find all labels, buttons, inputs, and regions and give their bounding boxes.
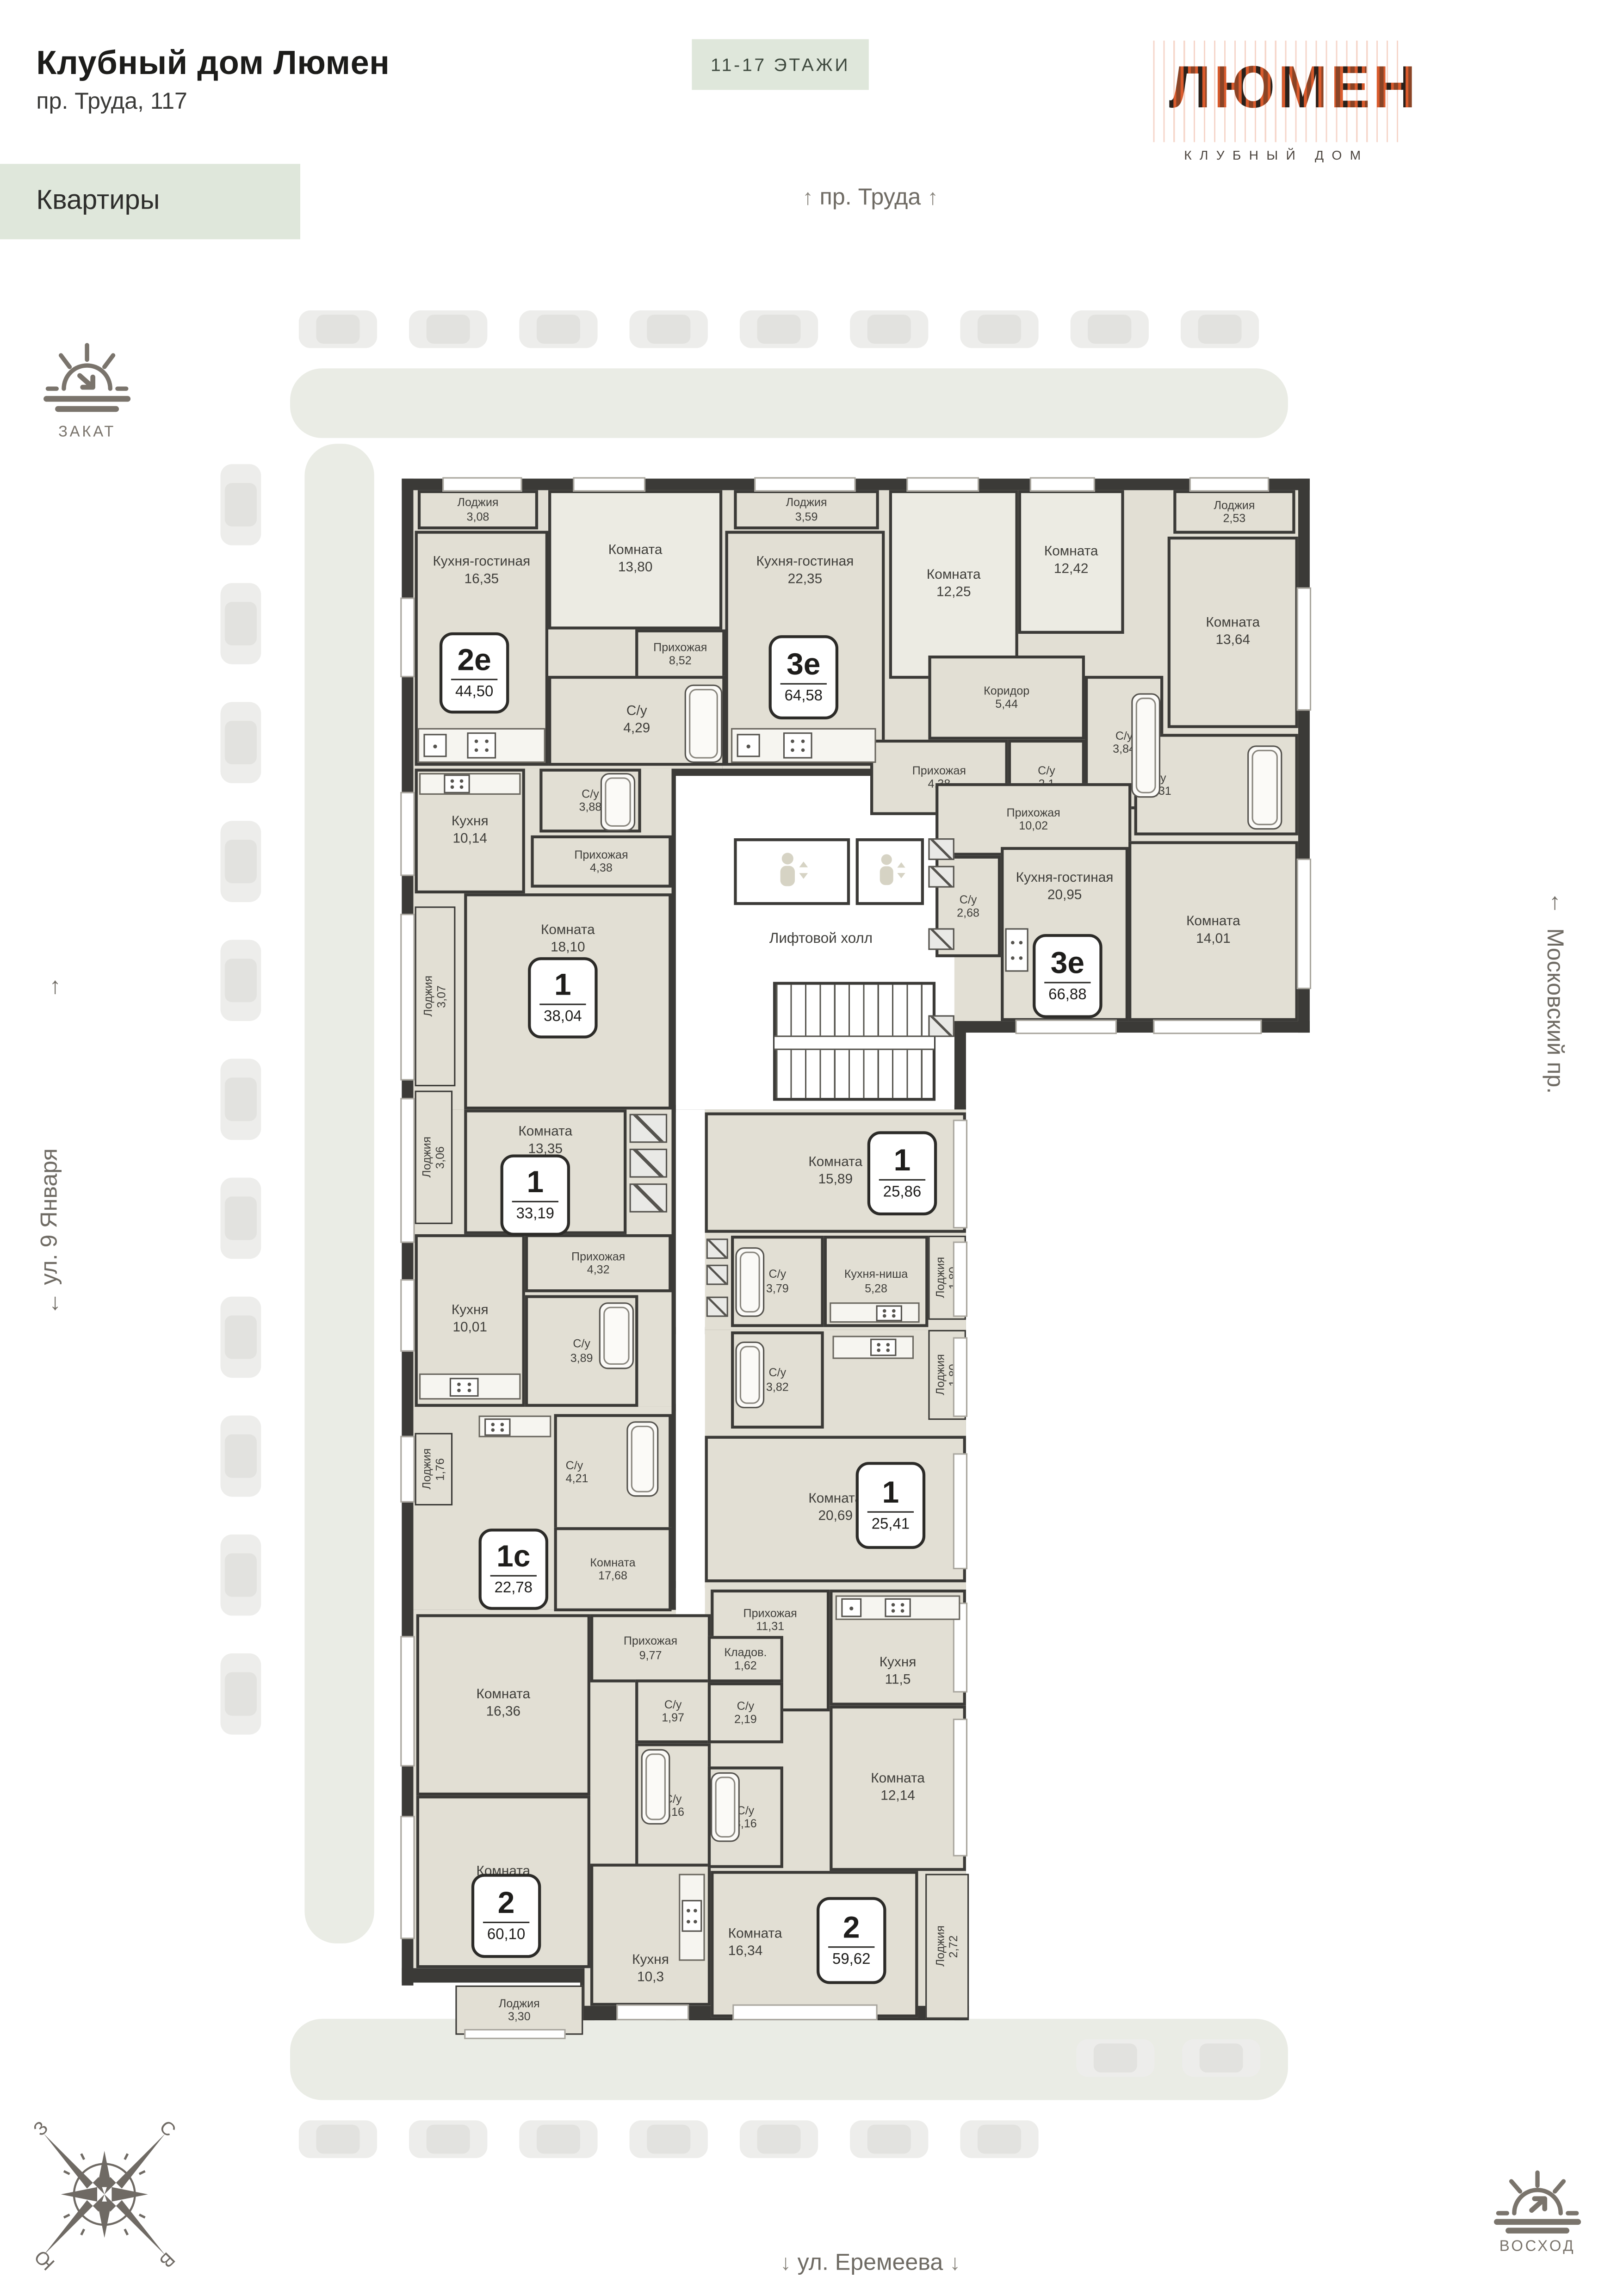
room-1s-loggia: Лоджия1,76	[415, 1433, 453, 1505]
arrow-up-icon: ↑	[1537, 891, 1572, 916]
window	[573, 477, 645, 491]
car-icon	[221, 464, 261, 545]
car-icon	[221, 1059, 261, 1140]
window	[953, 1242, 967, 1317]
room-5962-room2: Комната16,34	[711, 1871, 918, 2018]
window	[616, 2005, 689, 2020]
room-3804-loggia: Лоджия3,07	[415, 906, 456, 1086]
vent-shaft	[706, 1297, 728, 1317]
kitchen-counter	[830, 1302, 919, 1323]
window	[400, 1636, 415, 1766]
car-icon	[630, 2120, 708, 2158]
section-tab-apartments[interactable]: Квартиры	[0, 164, 300, 239]
car-icon	[221, 821, 261, 902]
stove-icon	[681, 1900, 702, 1932]
room-3e64-room2: Комната12,42	[1018, 490, 1124, 634]
section-label: Квартиры	[0, 186, 160, 217]
elevator-shaft	[734, 838, 850, 905]
stove-icon	[885, 1598, 911, 1617]
parking-lane-left	[304, 444, 374, 1943]
bathtub-icon	[601, 773, 635, 831]
car-icon	[221, 583, 261, 664]
room-3e64-room1: Комната12,25	[889, 490, 1018, 679]
window	[464, 2029, 565, 2039]
room-5962-room1: Комната12,14	[830, 1706, 966, 1871]
stove-icon	[467, 732, 496, 758]
sunset-label: ЗАКАТ	[29, 423, 145, 441]
window	[400, 914, 415, 1081]
bathtub-icon	[1247, 745, 1282, 829]
car-icon	[221, 702, 261, 783]
window	[400, 1098, 415, 1243]
car-icon	[221, 940, 261, 1021]
floor-plan-page: Клубный дом Люмен пр. Труда, 117 Квартир…	[0, 0, 1623, 2296]
bathtub-icon	[641, 1749, 670, 1825]
bathtub-icon	[711, 1772, 740, 1842]
car-icon	[299, 310, 377, 348]
car-icon	[409, 2120, 487, 2158]
car-icon	[960, 2120, 1038, 2158]
window	[1153, 1020, 1262, 1034]
car-icon	[1076, 2039, 1154, 2077]
arrow-down-icon: ↓	[780, 2251, 791, 2276]
room-3e64-loggia: Лоджия3,59	[734, 490, 879, 530]
stove-icon	[444, 774, 470, 793]
stove-icon	[783, 732, 812, 758]
sink-icon	[737, 734, 760, 757]
car-icon	[740, 310, 818, 348]
floors-badge: 11-17 ЭТАЖИ	[692, 39, 868, 90]
compass-rose: З С Ю В	[32, 2115, 177, 2274]
apartment-badge-2e-44-50[interactable]: 2е44,50	[440, 632, 509, 714]
room-6010-room1: Комната16,36	[416, 1614, 590, 1795]
window	[1189, 477, 1269, 491]
street-top: ↑ пр. Труда ↑	[624, 186, 1117, 211]
car-icon	[740, 2120, 818, 2158]
apartment-badge-1-38-04[interactable]: 138,04	[528, 957, 597, 1039]
window	[400, 1816, 415, 1939]
sink-icon	[423, 734, 446, 757]
window	[400, 1279, 415, 1352]
stove-icon	[1005, 928, 1028, 972]
stove-icon	[450, 1378, 479, 1397]
vent-shaft	[928, 928, 954, 950]
car-icon	[960, 310, 1038, 348]
bathtub-icon	[685, 685, 723, 763]
car-icon	[221, 1535, 261, 1616]
street-right: Московский пр.	[1540, 928, 1566, 1269]
car-icon	[850, 2120, 928, 2158]
bathtub-icon	[626, 1421, 658, 1497]
window	[732, 2005, 878, 2020]
room-1s-room: Комната17,68	[554, 1527, 672, 1611]
window	[400, 1436, 415, 1503]
elevator-shaft	[856, 838, 924, 905]
arrow-down-icon: ↓	[38, 1291, 73, 1317]
room-5962-bath1: С/у2,19	[708, 1683, 783, 1744]
sunrise-label: ВОСХОД	[1480, 2238, 1596, 2255]
street-bottom-label: ул. Еремеева	[798, 2251, 943, 2276]
room-3319-loggia: Лоджия3,06	[415, 1091, 453, 1224]
car-icon	[221, 1178, 261, 1259]
street-top-label: пр. Труда	[820, 186, 921, 210]
page-address: пр. Труда, 117	[36, 90, 187, 116]
street-bottom: ↓ ул. Еремеева ↓	[609, 2251, 1132, 2277]
staircase	[773, 982, 935, 1101]
window	[1297, 859, 1311, 989]
floors-badge-label: 11-17 ЭТАЖИ	[711, 55, 850, 75]
vent-shaft	[630, 1183, 668, 1213]
apartment-badge-1-25-86[interactable]: 125,86	[867, 1131, 937, 1215]
compass-star-icon	[32, 2115, 177, 2274]
vent-shaft	[630, 1149, 668, 1178]
window	[1297, 588, 1311, 711]
window	[442, 477, 522, 491]
room-2e-room: Комната13,80	[548, 490, 722, 630]
vent-shaft	[928, 866, 954, 888]
arrow-up-icon: ↑	[927, 186, 938, 210]
car-icon	[519, 2120, 597, 2158]
room-2e-loggia: Лоджия3,08	[418, 490, 538, 530]
vent-shaft	[706, 1238, 728, 1259]
bathtub-icon	[599, 1302, 634, 1369]
room-5962-loggia: Лоджия2,72	[925, 1874, 969, 2019]
room-6010-loggia: Лоджия3,30	[455, 1986, 583, 2035]
car-icon	[1182, 2039, 1260, 2077]
window	[953, 1120, 967, 1228]
street-left: ул. 9 Января	[38, 1009, 64, 1285]
wall	[402, 1968, 595, 1982]
window	[754, 477, 855, 491]
room-5962-storage: Кладов.1,62	[708, 1636, 783, 1682]
page-title: Клубный дом Люмен	[36, 43, 390, 83]
window	[953, 1337, 967, 1417]
parking-lane-top	[290, 368, 1288, 438]
bathtub-icon	[735, 1342, 764, 1408]
room-3e66-loggia: Лоджия2,53	[1173, 490, 1295, 534]
room-6010-bath1: С/у1,97	[635, 1679, 711, 1743]
arrow-up-icon: ↑	[802, 186, 813, 210]
window	[400, 792, 415, 876]
window	[953, 1719, 967, 1857]
window	[953, 1453, 967, 1569]
stove-icon	[870, 1339, 896, 1356]
sink-icon	[841, 1598, 861, 1617]
apartment-badge-1-25-41[interactable]: 125,41	[856, 1462, 925, 1549]
window	[1030, 477, 1095, 491]
car-icon	[221, 1653, 261, 1735]
room-2541-room: Комната20,69	[705, 1436, 966, 1583]
room-3e64-corridor: Коридор5,44	[928, 656, 1085, 740]
stove-icon	[484, 1418, 510, 1436]
car-icon	[221, 1297, 261, 1378]
elevator-hall-label: Лифтовой холл	[719, 931, 923, 947]
vent-shaft	[928, 838, 954, 860]
car-icon	[630, 310, 708, 348]
bathtub-icon	[1131, 693, 1160, 798]
room-6010-hallway: Прихожая9,77	[590, 1614, 711, 1682]
apartment-badge-3e-66-88[interactable]: 3е66,88	[1033, 934, 1102, 1018]
apartment-badge-1-33-19[interactable]: 133,19	[501, 1154, 570, 1236]
apartment-badge-3e-64-58[interactable]: 3е64,58	[769, 635, 838, 719]
elevator-person-icon	[873, 851, 907, 892]
room-3e66-room2: Комната14,01	[1128, 841, 1298, 1021]
window	[400, 598, 415, 677]
logo: ЛЮМЕН	[1169, 58, 1419, 118]
apartment-badge-2-59-62[interactable]: 259,62	[817, 1897, 886, 1984]
arrow-down-icon: ↓	[949, 2251, 960, 2276]
elevator-person-icon	[773, 850, 811, 893]
room-3e66-hallway: Прихожая10,02	[935, 783, 1131, 856]
car-icon	[409, 310, 487, 348]
room-3e66-room1: Комната13,64	[1168, 537, 1298, 728]
vent-shaft	[706, 1265, 728, 1285]
car-icon	[299, 2120, 377, 2158]
apartment-badge-2-60-10[interactable]: 260,10	[471, 1874, 541, 1958]
car-icon	[1071, 310, 1149, 348]
window	[1016, 1020, 1117, 1034]
sunset-icon	[43, 331, 130, 428]
room-3319-hallway: Прихожая4,32	[525, 1234, 672, 1292]
car-icon	[221, 1416, 261, 1497]
arrow-up-icon: ↑	[38, 975, 73, 1001]
vent-shaft	[630, 1114, 668, 1143]
room-2e-hallway: Прихожая8,52	[635, 630, 725, 679]
vent-shaft	[928, 1015, 954, 1037]
logo-subtitle: КЛУБНЫЙ ДОМ	[1160, 148, 1393, 162]
apartment-badge-1s-22-78[interactable]: 1с22,78	[479, 1529, 548, 1610]
car-icon	[850, 310, 928, 348]
stove-icon	[876, 1306, 902, 1321]
room-3804-hallway: Прихожая4,38	[531, 835, 671, 888]
sunrise-icon	[1491, 2167, 1584, 2244]
bathtub-icon	[735, 1247, 764, 1317]
window	[906, 477, 979, 491]
car-icon	[1181, 310, 1259, 348]
car-icon	[519, 310, 597, 348]
